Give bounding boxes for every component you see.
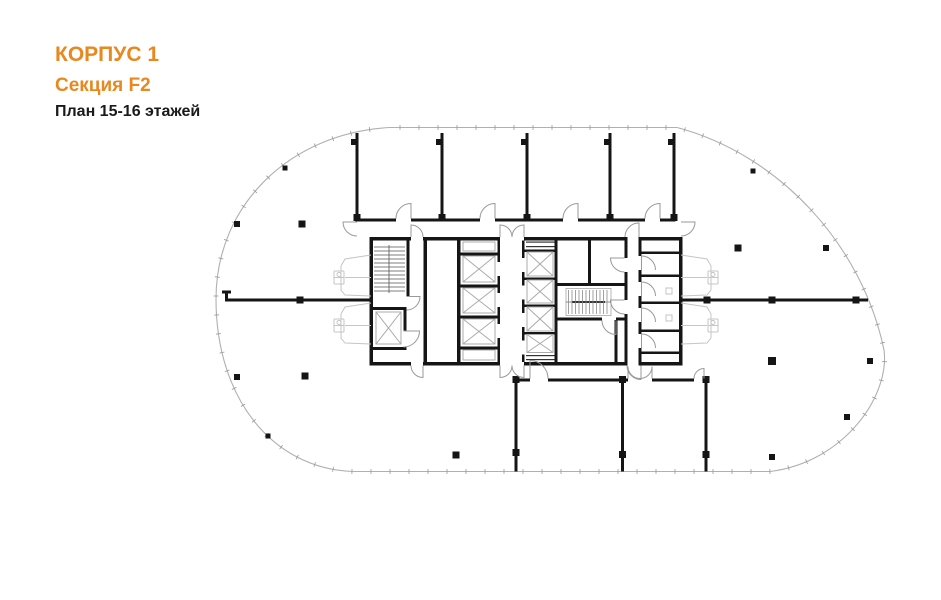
elevator-bank	[376, 242, 553, 360]
column-icon	[436, 139, 442, 145]
column-icon	[521, 139, 527, 145]
column-icon	[453, 452, 460, 459]
column-icon	[524, 214, 531, 221]
column-icon	[513, 449, 520, 456]
column-icon	[751, 169, 756, 174]
column-icon	[769, 297, 776, 304]
column-icon	[266, 434, 271, 439]
column-icon	[668, 139, 674, 145]
column-icon	[354, 214, 361, 221]
floor-plan-page: КОРПУС 1 Секция F2 План 15-16 этажей	[0, 0, 941, 600]
column-icon	[867, 358, 873, 364]
column-icon	[853, 297, 860, 304]
column-icon	[351, 139, 357, 145]
column-icon	[844, 414, 850, 420]
mullion-tick	[833, 238, 837, 241]
mullion-tick	[369, 127, 370, 132]
column-icon	[297, 297, 304, 304]
column-icon	[735, 245, 742, 252]
column-icon	[704, 297, 711, 304]
floor-plan-drawing	[0, 0, 941, 600]
column-icon	[283, 166, 288, 171]
column-icon	[234, 374, 240, 380]
column-icon	[439, 214, 446, 221]
column-icon	[823, 245, 829, 251]
shaft-cell	[463, 350, 495, 360]
column-icon	[769, 454, 775, 460]
mullion-tick	[215, 277, 220, 278]
staircase-icon	[566, 289, 611, 316]
column-icon	[234, 221, 240, 227]
elevator-icon	[463, 288, 495, 313]
column-icon	[768, 357, 776, 365]
elevator-icon	[463, 319, 495, 344]
elevator-icon	[376, 312, 401, 344]
mullion-tick	[333, 467, 334, 472]
column-icon	[302, 373, 309, 380]
column-icon	[703, 451, 710, 458]
elevator-icon	[463, 256, 495, 282]
column-icon	[671, 214, 678, 221]
column-icon	[619, 376, 626, 383]
elevator-icon	[527, 335, 553, 353]
shaft-cell	[463, 242, 495, 251]
column-icon	[513, 376, 520, 383]
elevator-icon	[527, 280, 553, 303]
column-icon	[619, 451, 626, 458]
column-icon	[604, 139, 610, 145]
mullion-tick	[220, 352, 225, 353]
elevator-icon	[527, 252, 553, 276]
mullion-tick	[880, 342, 885, 343]
mullion-tick	[216, 334, 221, 335]
column-icon	[299, 221, 306, 228]
elevator-icon	[527, 307, 553, 331]
staircase-icon	[374, 245, 405, 293]
column-icon	[607, 214, 614, 221]
